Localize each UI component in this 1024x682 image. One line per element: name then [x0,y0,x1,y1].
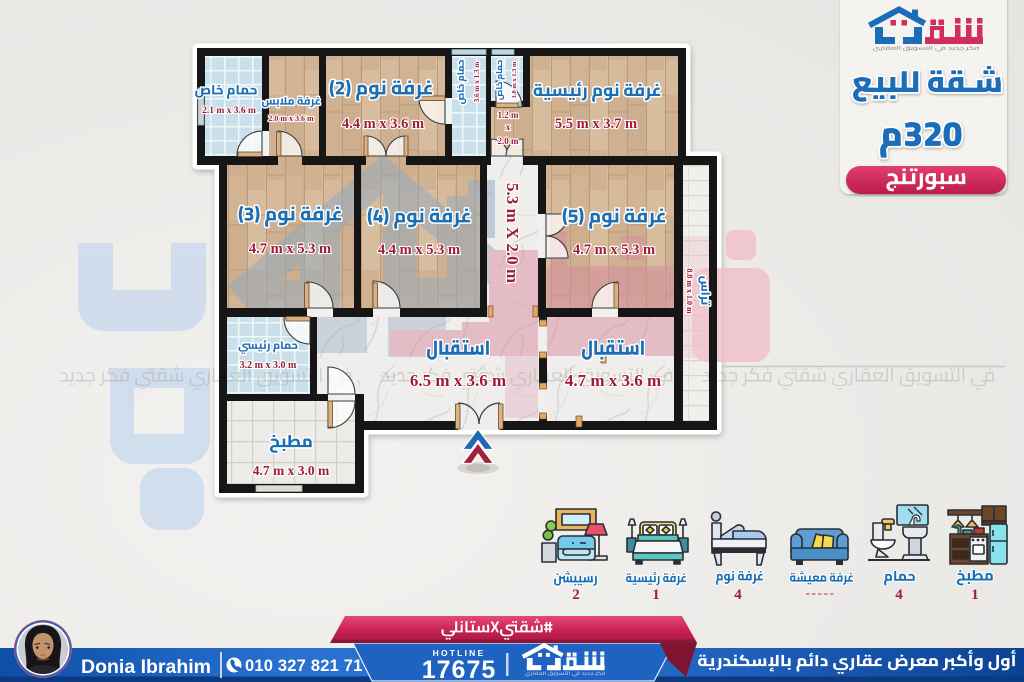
svg-text:1: 1 [971,587,979,603]
svg-text:Donia Ibrahim: Donia Ibrahim [81,656,211,678]
svg-text:5.3 m X 2.0 m: 5.3 m X 2.0 m [503,183,522,283]
svg-text:1.2 m: 1.2 m [498,110,520,120]
svg-text:8.8 m x 1.0 m: 8.8 m x 1.0 m [685,268,694,314]
svg-text:2.0 m: 2.0 m [498,136,520,146]
svg-text:1: 1 [652,587,660,603]
svg-text:x: x [506,122,511,132]
svg-text:2.1 m x 3.6 m: 2.1 m x 3.6 m [202,106,256,116]
svg-text:4.7 m x 3.6 m: 4.7 m x 3.6 m [565,371,661,390]
svg-text:010 327 821 71: 010 327 821 71 [245,657,363,675]
svg-text:6.5 m x 3.6 m: 6.5 m x 3.6 m [410,371,506,390]
svg-text:4: 4 [895,587,903,603]
svg-text:3.2 m x 3.0 m: 3.2 m x 3.0 m [240,360,297,371]
svg-text:4.7 m x 3.0 m: 4.7 m x 3.0 m [253,463,330,478]
svg-text:2: 2 [572,587,580,603]
svg-text:4.4 m x 5.3 m: 4.4 m x 5.3 m [378,242,460,258]
svg-text:2.0 m x 3.6 m: 2.0 m x 3.6 m [268,114,314,123]
svg-text:4.7 m x 5.3 m: 4.7 m x 5.3 m [249,241,331,257]
svg-text:5.5 m x 3.7 m: 5.5 m x 3.7 m [555,116,637,132]
svg-text:3.6 m x 1.3 m: 3.6 m x 1.3 m [473,62,481,103]
svg-text:4.7 m x 5.3 m: 4.7 m x 5.3 m [573,242,655,258]
svg-text:1.8 m x 1.3 m: 1.8 m x 1.3 m [511,61,518,98]
svg-text:4.4 m x 3.6 m: 4.4 m x 3.6 m [342,116,424,132]
svg-text:4: 4 [734,587,742,603]
svg-text:17675: 17675 [422,656,497,682]
